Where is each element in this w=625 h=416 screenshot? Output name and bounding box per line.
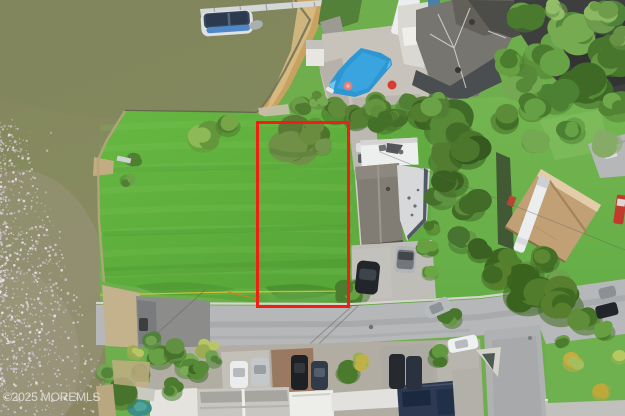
svg-text:©2025 MOREMLS: ©2025 MOREMLS — [3, 390, 100, 404]
